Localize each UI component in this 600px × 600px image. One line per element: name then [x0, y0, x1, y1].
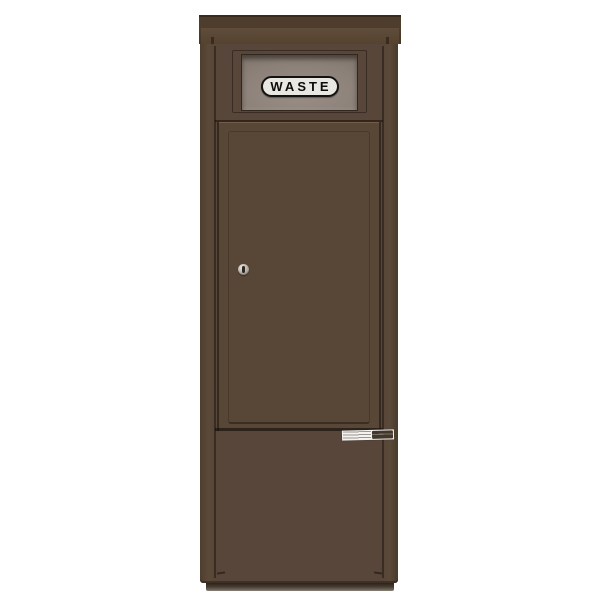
bin-access-door [219, 122, 379, 428]
left-stile-seam [214, 46, 216, 578]
cap-fascia [199, 28, 401, 44]
manufacturer-logo-icon [372, 430, 393, 439]
waste-sign-pill: WASTE [261, 76, 339, 97]
door-gap-right [379, 122, 381, 431]
base-plinth [206, 583, 394, 591]
spec-sticker [342, 429, 394, 440]
waste-sign-label: WASTE [267, 80, 331, 93]
keyhole-slot [242, 266, 245, 273]
right-stile-seam [382, 46, 384, 578]
sticker-microtext [343, 431, 371, 440]
cap-top-band [199, 15, 401, 28]
door-gap-left [217, 122, 219, 431]
cap-notch-right [386, 37, 389, 44]
product-image: WASTE [0, 0, 600, 600]
cap-notch-left [211, 37, 214, 44]
waste-sign-panel: WASTE [242, 55, 357, 110]
door-recessed-groove [228, 131, 370, 424]
cabinet-cap [199, 15, 401, 44]
keyhole-icon [238, 264, 249, 275]
